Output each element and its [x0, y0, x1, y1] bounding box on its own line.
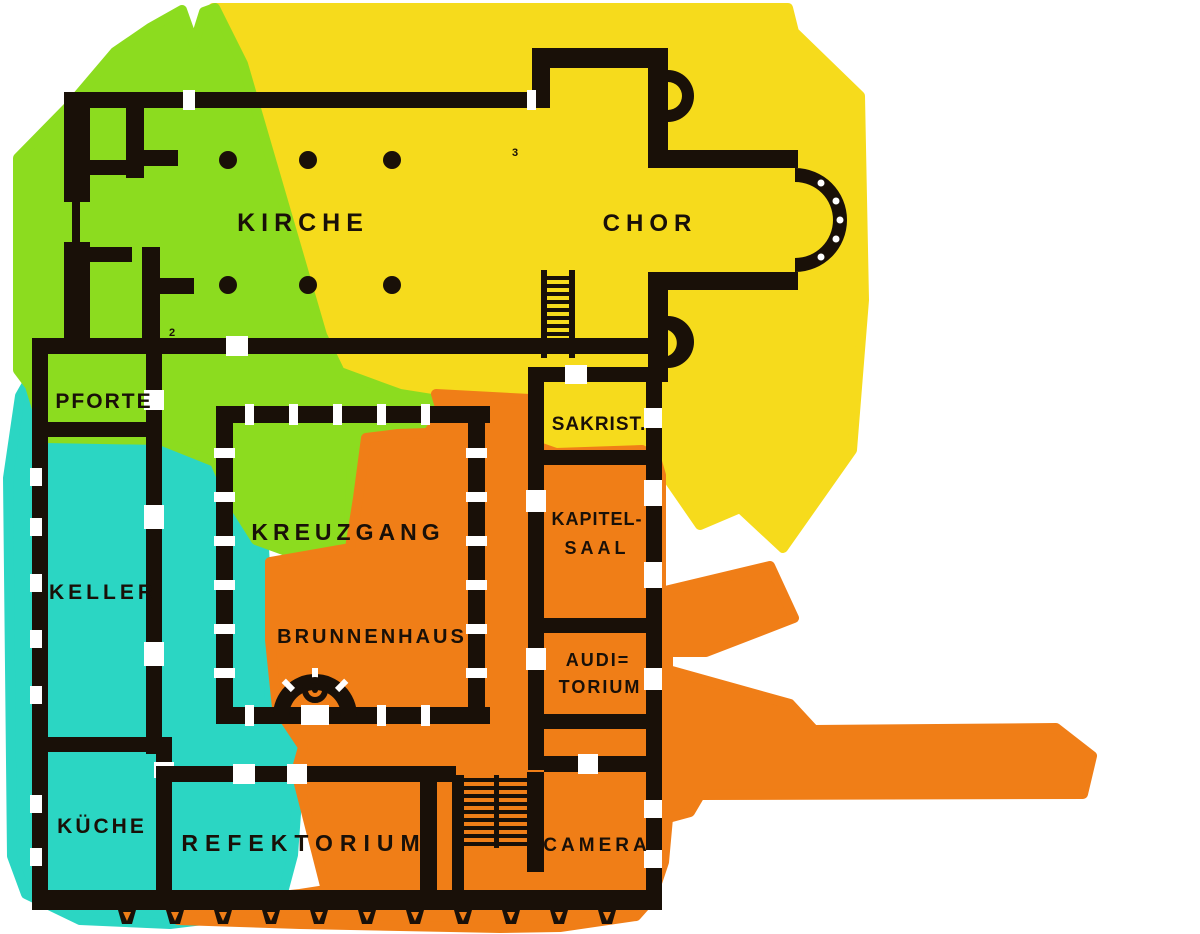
- label-camera: CAMERA: [543, 835, 650, 856]
- label-kirche: KIRCHE: [237, 209, 369, 237]
- well-dot: [312, 687, 318, 693]
- label-keller: KELLER: [49, 581, 157, 604]
- label-brunnenhaus: BRUNNENHAUS: [277, 626, 467, 648]
- label-kueche: KÜCHE: [57, 815, 147, 838]
- label-pforte: PFORTE: [55, 390, 152, 413]
- label-chor: CHOR: [603, 210, 698, 237]
- label-kapitelsaal-line1: KAPITEL-: [552, 509, 643, 529]
- label-sakristei: SAKRIST.: [552, 414, 647, 435]
- monastery-floor-plan: KIRCHE CHOR PFORTE SAKRIST. KELLER KREUZ…: [0, 0, 1200, 934]
- label-numeral-3: 3: [512, 147, 518, 159]
- label-auditorium-line1: AUDI=: [566, 650, 631, 670]
- label-kapitelsaal-line2: SAAL: [565, 538, 630, 558]
- label-kreuzgang: KREUZGANG: [251, 519, 444, 545]
- label-refektorium: REFEKTORIUM: [181, 830, 426, 856]
- label-auditorium-line2: TORIUM: [559, 677, 642, 697]
- floor-plan-svg: KIRCHE CHOR PFORTE SAKRIST. KELLER KREUZ…: [0, 0, 1200, 934]
- label-numeral-2: 2: [169, 327, 175, 339]
